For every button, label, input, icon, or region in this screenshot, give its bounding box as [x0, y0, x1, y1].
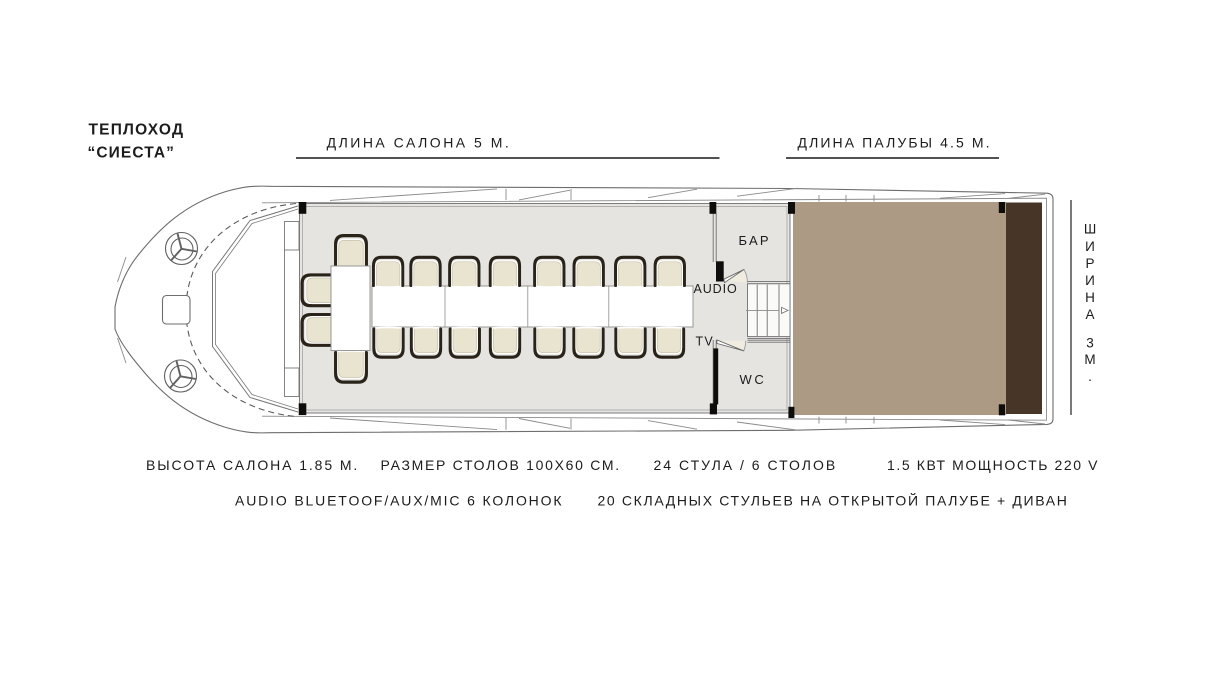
svg-text:И: И — [1085, 273, 1095, 288]
svg-text:ДЛИНА САЛОНА 5 М.: ДЛИНА САЛОНА 5 М. — [327, 135, 512, 151]
svg-text:А: А — [1085, 307, 1094, 322]
svg-text:20 СКЛАДНЫХ СТУЛЬЕВ НА ОТКРЫТО: 20 СКЛАДНЫХ СТУЛЬЕВ НА ОТКРЫТОЙ ПАЛУБЕ +… — [598, 492, 1069, 509]
svg-text:Р: Р — [1085, 256, 1094, 271]
svg-text:М: М — [1084, 352, 1095, 367]
svg-text:Ш: Ш — [1084, 222, 1096, 237]
svg-text:24 СТУЛА / 6 СТОЛОВ: 24 СТУЛА / 6 СТОЛОВ — [654, 457, 838, 473]
svg-text:WC: WC — [740, 372, 767, 387]
svg-text:ВЫСОТА САЛОНА 1.85 М.: ВЫСОТА САЛОНА 1.85 М. — [146, 457, 359, 473]
svg-text:.: . — [1088, 369, 1092, 384]
svg-text:ТЕПЛОХОД: ТЕПЛОХОД — [89, 122, 185, 139]
svg-text:И: И — [1085, 239, 1095, 254]
svg-text:БАР: БАР — [739, 233, 771, 248]
svg-text:1.5 КВТ МОЩНОСТЬ 220 V: 1.5 КВТ МОЩНОСТЬ 220 V — [887, 457, 1099, 473]
svg-text:РАЗМЕР СТОЛОВ 100Х60 СМ.: РАЗМЕР СТОЛОВ 100Х60 СМ. — [381, 457, 621, 473]
svg-text:TV: TV — [696, 335, 714, 349]
svg-text:“СИЕСТА”: “СИЕСТА” — [88, 145, 175, 162]
svg-text:AUDIO BLUETOOF/AUX/MIC 6 КОЛОН: AUDIO BLUETOOF/AUX/MIC 6 КОЛОНОК — [235, 493, 563, 509]
svg-text:3: 3 — [1086, 336, 1094, 351]
svg-text:AUDIO: AUDIO — [694, 282, 738, 296]
svg-text:ДЛИНА ПАЛУБЫ 4.5 М.: ДЛИНА ПАЛУБЫ 4.5 М. — [798, 135, 992, 151]
svg-text:Н: Н — [1085, 290, 1095, 305]
